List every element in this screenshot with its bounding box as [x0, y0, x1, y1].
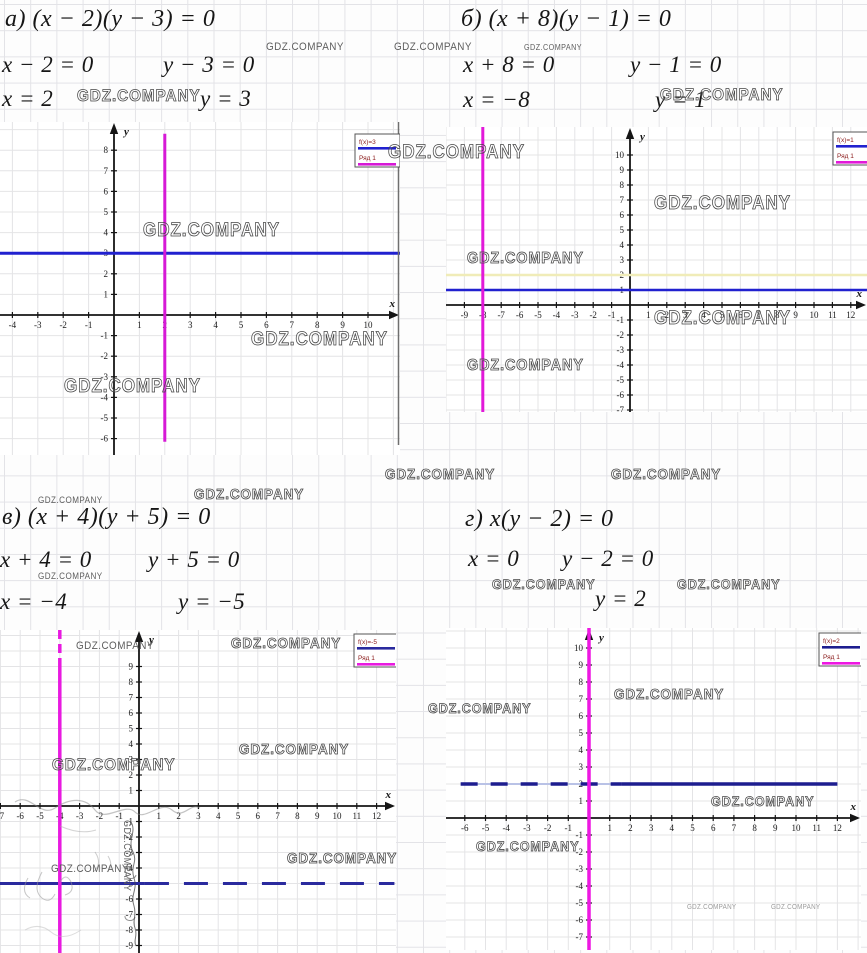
- y-tick-label: 9: [129, 662, 134, 672]
- y-tick-label: 1: [104, 289, 109, 299]
- y-tick-label: 1: [129, 786, 134, 796]
- legend-label: Ряд 1: [358, 655, 375, 662]
- y-tick-label: -1: [101, 331, 109, 341]
- x-tick-label: -4: [553, 310, 561, 320]
- y-tick-label: -4: [576, 881, 584, 891]
- legend-color-bar: [357, 647, 395, 650]
- legend-color-bar: [822, 662, 860, 665]
- x-tick-label: 1: [646, 310, 651, 320]
- watermark: GDZ.COMPANY: [654, 309, 791, 328]
- watermark: GDZ.COMPANY: [52, 756, 176, 773]
- x-tick-label: 3: [196, 811, 201, 821]
- x-tick-label: -1: [565, 823, 573, 833]
- x-tick-label: 12: [833, 823, 842, 833]
- x-tick-label: 4: [216, 811, 221, 821]
- watermark: GDZ.COMPANY: [51, 864, 129, 875]
- y-tick-label: -7: [126, 910, 134, 920]
- x-tick-label: -3: [76, 811, 84, 821]
- y-tick-label: 5: [104, 207, 109, 217]
- x-tick-label: 2: [628, 823, 633, 833]
- legend-color-bar: [836, 145, 867, 148]
- problem-b-equation: б) (x + 8)(y − 1) = 0: [461, 6, 671, 33]
- legend-label: f(x)=-5: [358, 639, 377, 646]
- y-tick-label: -3: [576, 864, 584, 874]
- problem-a-root2: y = 3: [200, 86, 251, 112]
- problem-v-equation: в) (x + 4)(y + 5) = 0: [2, 504, 211, 531]
- watermark: GDZ.COMPANY: [38, 572, 103, 581]
- problem-b-factor2: y − 1 = 0: [630, 52, 722, 78]
- y-tick-label: -5: [576, 898, 584, 908]
- watermark: GDZ.COMPANY: [677, 577, 780, 591]
- y-tick-label: 10: [615, 150, 625, 160]
- x-tick-label: 2: [176, 811, 181, 821]
- watermark: GDZ.COMPANY: [492, 577, 595, 591]
- watermark: GDZ.COMPANY: [614, 687, 724, 702]
- y-tick-label: -8: [126, 925, 134, 935]
- problem-a-factor2: y − 3 = 0: [163, 52, 255, 78]
- y-tick-label: 8: [104, 145, 109, 155]
- problem-v-factor1: x + 4 = 0: [0, 547, 92, 573]
- watermark: GDZ.COMPANY: [194, 487, 304, 502]
- x-tick-label: 4: [213, 320, 218, 330]
- y-tick-label: 6: [129, 708, 134, 718]
- problem-a-factor1: x − 2 = 0: [2, 52, 94, 78]
- y-tick-label: 5: [579, 728, 584, 738]
- watermark: GDZ.COMPANY: [711, 794, 814, 808]
- y-tick-label: 3: [620, 255, 625, 265]
- y-tick-label: -6: [576, 915, 584, 925]
- y-tick-label: 3: [579, 762, 584, 772]
- watermark: GDZ.COMPANY: [611, 467, 721, 482]
- y-tick-label: 5: [129, 724, 134, 734]
- watermark: GDZ.COMPANY: [654, 194, 791, 213]
- y-tick-label: 4: [579, 745, 584, 755]
- y-tick-label: 2: [104, 269, 109, 279]
- watermark: GDZ.COMPANY: [388, 143, 525, 162]
- legend-color-bar: [357, 663, 395, 666]
- x-tick-label: -3: [523, 823, 531, 833]
- x-tick-label: -6: [516, 310, 524, 320]
- problem-g-factor2: y − 2 = 0: [562, 546, 654, 572]
- watermark: GDZ.COMPANY: [687, 904, 736, 911]
- y-tick-label: -6: [101, 434, 109, 444]
- y-tick-label: 6: [579, 711, 584, 721]
- graph-v-plot: -7-6-5-4-3-2-1123456789101112-9-8-7-6-5-…: [0, 630, 396, 953]
- y-tick-label: 7: [104, 166, 109, 176]
- x-tick-label: 10: [333, 811, 343, 821]
- y-tick-label: -5: [101, 413, 109, 423]
- y-tick-label: -2: [101, 351, 109, 361]
- y-tick-label: -6: [126, 894, 134, 904]
- y-tick-label: -7: [576, 932, 584, 942]
- x-tick-label: 10: [810, 310, 820, 320]
- watermark: GDZ.COMPANY: [251, 330, 388, 349]
- plot-background: [446, 628, 861, 950]
- y-tick-label: 7: [579, 694, 584, 704]
- legend-label: f(x)=2: [823, 638, 840, 645]
- y-axis-label: y: [122, 126, 129, 138]
- x-tick-label: -1: [608, 310, 616, 320]
- x-tick-label: 9: [793, 310, 798, 320]
- legend-label: Ряд 1: [823, 654, 840, 661]
- watermark: GDZ.COMPANY: [428, 701, 531, 715]
- x-tick-label: 9: [315, 811, 320, 821]
- x-axis-label: x: [389, 298, 396, 310]
- watermark: GDZ.COMPANY: [239, 742, 349, 757]
- watermark: GDZ.COMPANY: [231, 636, 341, 651]
- x-tick-label: -7: [497, 310, 505, 320]
- x-tick-label: 7: [275, 811, 280, 821]
- legend-color-bar: [836, 161, 867, 164]
- x-tick-label: -5: [482, 823, 490, 833]
- y-tick-label: 7: [129, 693, 134, 703]
- watermark: GDZ.COMPANY: [64, 377, 201, 396]
- y-tick-label: 10: [574, 643, 584, 653]
- legend-label: Ряд 1: [359, 155, 376, 162]
- y-tick-label: 6: [104, 186, 109, 196]
- y-tick-label: -3: [617, 345, 625, 355]
- x-tick-label: 11: [828, 310, 837, 320]
- watermark: GDZ.COMPANY: [467, 251, 584, 267]
- y-tick-label: 6: [620, 210, 625, 220]
- watermark: GDZ.COMPANY: [121, 820, 131, 891]
- watermark: GDZ.COMPANY: [266, 42, 344, 53]
- y-tick-label: 7: [620, 195, 625, 205]
- x-tick-label: -3: [571, 310, 579, 320]
- y-tick-label: 9: [620, 165, 625, 175]
- legend-label: f(x)=3: [359, 139, 376, 146]
- legend-color-bar: [822, 646, 860, 649]
- problem-b-factor1: x + 8 = 0: [463, 52, 555, 78]
- x-tick-label: -6: [461, 823, 469, 833]
- x-tick-label: 3: [649, 823, 654, 833]
- y-tick-label: 9: [579, 660, 584, 670]
- y-tick-label: -6: [617, 390, 625, 400]
- problem-g-root2: y = 2: [595, 586, 646, 612]
- y-tick-label: 5: [620, 225, 625, 235]
- x-tick-label: -2: [96, 811, 104, 821]
- watermark: GDZ.COMPANY: [660, 86, 784, 103]
- y-tick-label: -4: [617, 360, 625, 370]
- watermark: GDZ.COMPANY: [771, 904, 820, 911]
- graph-v-panel: -7-6-5-4-3-2-1123456789101112-9-8-7-6-5-…: [0, 630, 396, 953]
- gdz-solution-page: { "page": {"width": 867, "height": 953},…: [0, 0, 867, 953]
- legend-color-bar: [358, 163, 396, 166]
- x-tick-label: -3: [34, 320, 42, 330]
- x-axis-label: x: [850, 801, 857, 813]
- watermark: GDZ.COMPANY: [476, 839, 579, 853]
- x-tick-label: -1: [85, 320, 93, 330]
- y-tick-label: 4: [129, 739, 134, 749]
- x-tick-label: 8: [295, 811, 300, 821]
- x-tick-label: 10: [792, 823, 802, 833]
- problem-a-equation: а) (x − 2)(y − 3) = 0: [5, 6, 215, 33]
- watermark: GDZ.COMPANY: [467, 358, 584, 374]
- plot-background: [0, 122, 400, 455]
- x-tick-label: 11: [352, 811, 361, 821]
- watermark: GDZ.COMPANY: [77, 87, 201, 104]
- watermark: GDZ.COMPANY: [394, 42, 472, 53]
- x-tick-label: -2: [544, 823, 552, 833]
- watermark: GDZ.COMPANY: [385, 467, 495, 482]
- y-tick-label: -2: [617, 330, 625, 340]
- graph-g-panel: -6-5-4-3-2-1123456789101112-7-6-5-4-3-2-…: [446, 628, 861, 950]
- y-tick-label: -1: [617, 315, 625, 325]
- x-tick-label: -4: [502, 823, 510, 833]
- problem-a-root1: x = 2: [2, 86, 53, 112]
- x-tick-label: 11: [812, 823, 821, 833]
- y-tick-label: 8: [579, 677, 584, 687]
- graph-a-plot: -4-3-2-112345678910-6-5-4-3-2-112345678x…: [0, 122, 400, 455]
- problem-g-factor1: x = 0: [468, 546, 519, 572]
- legend-label: f(x)=1: [837, 137, 854, 144]
- x-tick-label: 3: [188, 320, 193, 330]
- watermark: GDZ.COMPANY: [38, 496, 103, 505]
- y-tick-label: 4: [104, 228, 109, 238]
- y-tick-label: -7: [617, 405, 625, 412]
- graph-a-panel: -4-3-2-112345678910-6-5-4-3-2-112345678x…: [0, 122, 400, 455]
- y-axis-label: y: [638, 131, 645, 143]
- x-tick-label: 7: [732, 823, 737, 833]
- x-tick-label: 1: [157, 811, 162, 821]
- x-tick-label: -5: [36, 811, 44, 821]
- x-tick-label: 6: [711, 823, 716, 833]
- watermark: GDZ.COMPANY: [524, 44, 582, 52]
- y-tick-label: 4: [620, 240, 625, 250]
- x-tick-label: 5: [236, 811, 241, 821]
- y-tick-label: -5: [617, 375, 625, 385]
- x-tick-label: -5: [534, 310, 542, 320]
- x-tick-label: -9: [461, 310, 469, 320]
- x-tick-label: 6: [256, 811, 261, 821]
- x-tick-label: 12: [846, 310, 855, 320]
- watermark: GDZ.COMPANY: [287, 851, 397, 866]
- y-tick-label: 8: [620, 180, 625, 190]
- x-tick-label: -4: [9, 320, 17, 330]
- problem-b-root1: x = −8: [463, 87, 530, 113]
- x-tick-label: 8: [752, 823, 757, 833]
- y-axis-label: y: [597, 632, 604, 644]
- problem-v-root2: y = −5: [178, 589, 245, 615]
- problem-v-factor2: y + 5 = 0: [148, 547, 240, 573]
- legend-label: Ряд 1: [837, 153, 854, 160]
- x-tick-label: -2: [59, 320, 67, 330]
- y-tick-label: 1: [579, 796, 584, 806]
- x-axis-label: x: [385, 789, 392, 801]
- y-tick-label: -9: [126, 941, 134, 951]
- problem-g-equation: г) x(y − 2) = 0: [465, 506, 614, 533]
- x-tick-label: 5: [239, 320, 244, 330]
- x-tick-label: 5: [690, 823, 695, 833]
- x-tick-label: 9: [773, 823, 778, 833]
- y-tick-label: 8: [129, 677, 134, 687]
- x-tick-label: -7: [0, 811, 5, 821]
- watermark: GDZ.COMPANY: [76, 641, 154, 652]
- watermark: GDZ.COMPANY: [143, 221, 280, 240]
- x-tick-label: 12: [372, 811, 381, 821]
- problem-v-root1: x = −4: [0, 589, 67, 615]
- graph-g-plot: -6-5-4-3-2-1123456789101112-7-6-5-4-3-2-…: [446, 628, 861, 950]
- x-tick-label: -2: [589, 310, 597, 320]
- x-tick-label: -6: [16, 811, 24, 821]
- x-tick-label: 1: [137, 320, 142, 330]
- x-tick-label: 1: [607, 823, 612, 833]
- x-tick-label: 4: [670, 823, 675, 833]
